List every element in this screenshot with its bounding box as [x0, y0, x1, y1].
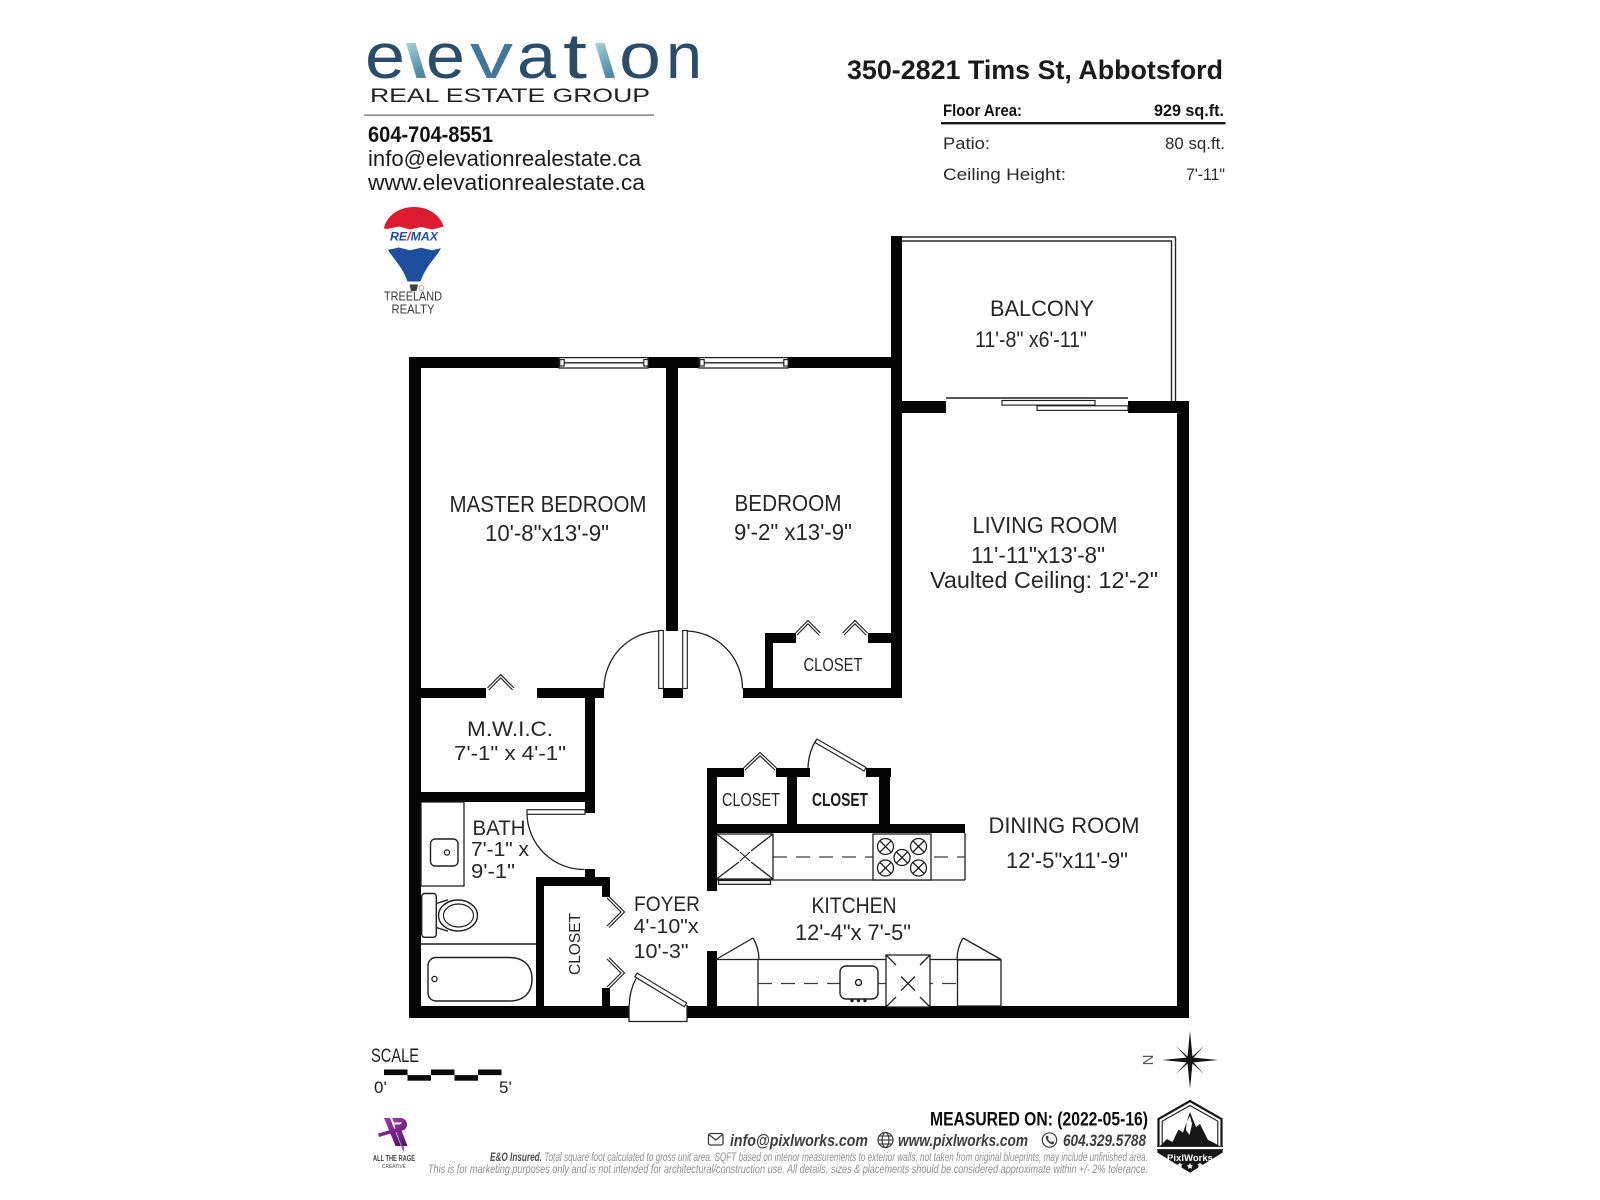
svg-text:10'-3": 10'-3" — [634, 941, 689, 963]
svg-text:12'-4"x 7'-5": 12'-4"x 7'-5" — [795, 920, 911, 945]
svg-text:FOYER: FOYER — [634, 893, 700, 916]
svg-text:7'-1" x: 7'-1" x — [471, 839, 529, 861]
svg-text:www.pixlworks.com: www.pixlworks.com — [898, 1131, 1028, 1150]
svg-text:CLOSET: CLOSET — [722, 790, 780, 810]
svg-text:10'-8"x13'-9": 10'-8"x13'-9" — [485, 520, 609, 546]
svg-text:Vaulted Ceiling: 12'-2": Vaulted Ceiling: 12'-2" — [930, 567, 1158, 593]
svg-text:BATH: BATH — [473, 817, 526, 840]
svg-text:info@pixlworks.com: info@pixlworks.com — [730, 1131, 868, 1150]
svg-text:CLOSET: CLOSET — [804, 654, 863, 675]
svg-text:9'-1": 9'-1" — [471, 861, 515, 883]
svg-text:ALL THE RAGE: ALL THE RAGE — [373, 1154, 415, 1163]
svg-text:11'-8" x6'-11": 11'-8" x6'-11" — [975, 327, 1087, 352]
svg-text:SCALE: SCALE — [371, 1046, 419, 1067]
svg-text:BEDROOM: BEDROOM — [735, 490, 842, 516]
svg-text:DINING ROOM: DINING ROOM — [989, 813, 1140, 838]
svg-text:KITCHEN: KITCHEN — [812, 893, 897, 918]
svg-text:11'-11"x13'-8": 11'-11"x13'-8" — [971, 542, 1105, 568]
svg-text:CLOSET: CLOSET — [567, 913, 584, 975]
svg-text:604.329.5788: 604.329.5788 — [1063, 1131, 1146, 1150]
svg-text:9'-2" x13'-9": 9'-2" x13'-9" — [734, 519, 852, 545]
svg-text:12'-5"x11'-9": 12'-5"x11'-9" — [1006, 848, 1128, 873]
svg-text:PixlWorks: PixlWorks — [1167, 1153, 1213, 1164]
svg-text:CREATIVE: CREATIVE — [382, 1164, 406, 1170]
svg-text:CLOSET: CLOSET — [812, 790, 868, 810]
svg-text:N: N — [1140, 1055, 1157, 1066]
svg-text:MEASURED ON: (2022-05-16): MEASURED ON: (2022-05-16) — [930, 1110, 1148, 1131]
svg-text:This is for marketing purposes: This is for marketing purposes only and … — [428, 1164, 1148, 1176]
svg-text:BALCONY: BALCONY — [990, 296, 1094, 321]
svg-text:LIVING ROOM: LIVING ROOM — [973, 512, 1118, 538]
svg-text:E&O Insured. Total square foo: E&O Insured. Total square foot calculate… — [490, 1152, 1148, 1164]
svg-text:4'-10"x: 4'-10"x — [634, 916, 699, 938]
svg-text:M.W.I.C.: M.W.I.C. — [467, 718, 553, 741]
svg-text:7'-1" x 4'-1": 7'-1" x 4'-1" — [454, 743, 566, 765]
svg-text:MASTER BEDROOM: MASTER BEDROOM — [450, 491, 647, 517]
